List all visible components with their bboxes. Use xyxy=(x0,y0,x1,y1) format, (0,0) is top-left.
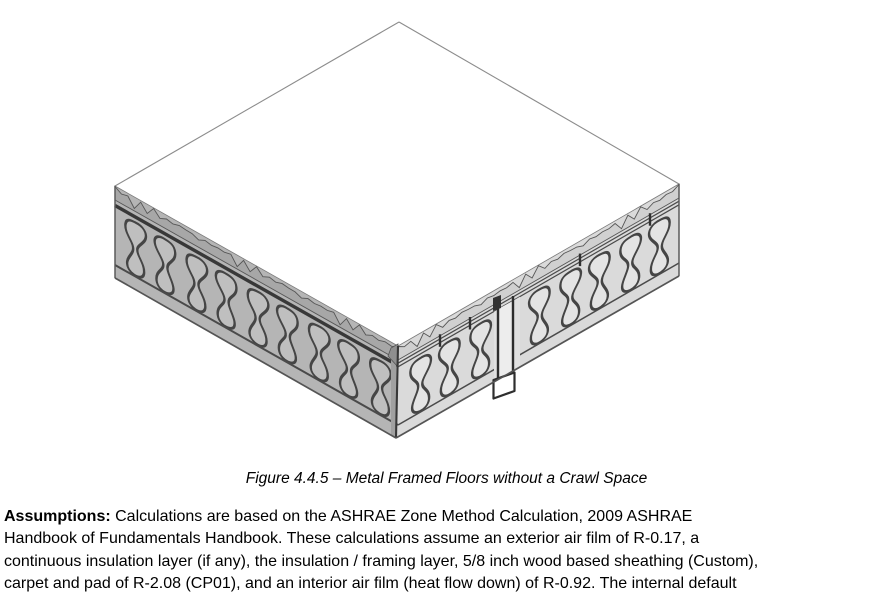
assumptions-line-1: Assumptions: Calculations are based on t… xyxy=(4,506,893,528)
floor-assembly-figure xyxy=(0,0,893,462)
assumptions-line-4: carpet and pad of R-2.08 (CP01), and an … xyxy=(4,573,893,595)
assumptions-paragraph: Assumptions: Calculations are based on t… xyxy=(4,506,893,596)
floor-assembly-illustration xyxy=(0,0,893,462)
assumptions-label: Assumptions: xyxy=(4,508,111,525)
assumptions-line-1-text: Calculations are based on the ASHRAE Zon… xyxy=(115,508,692,525)
assumptions-line-2: Handbook of Fundamentals Handbook. These… xyxy=(4,528,893,550)
document-page: Figure 4.4.5 – Metal Framed Floors witho… xyxy=(0,0,893,605)
assumptions-line-3: continuous insulation layer (if any), th… xyxy=(4,551,893,573)
figure-caption: Figure 4.4.5 – Metal Framed Floors witho… xyxy=(0,469,893,489)
